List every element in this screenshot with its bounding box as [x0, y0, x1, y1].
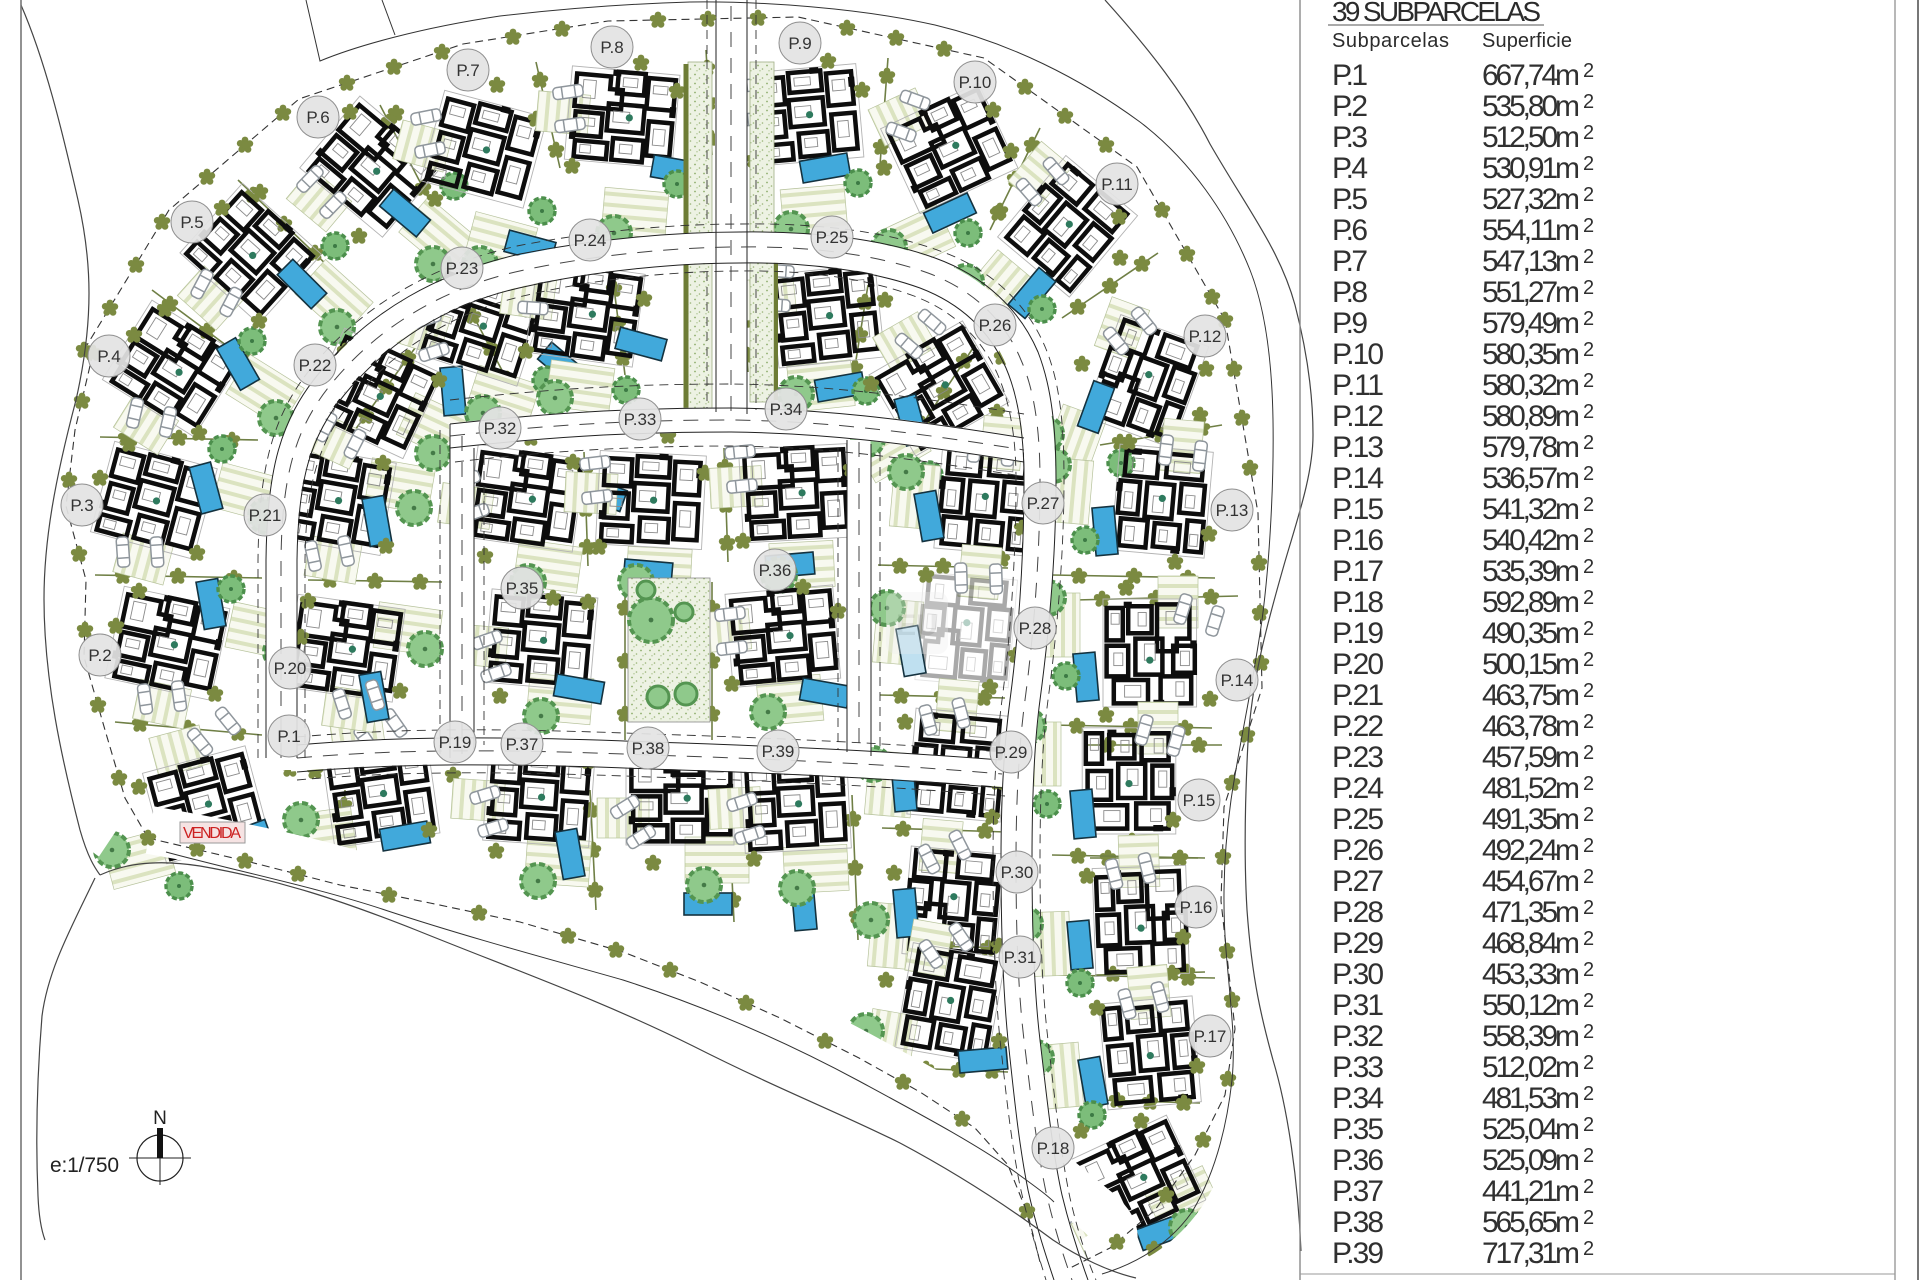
svg-text:2: 2	[1583, 494, 1594, 516]
svg-text:441,21m: 441,21m	[1482, 1175, 1580, 1208]
svg-text:2: 2	[1583, 91, 1594, 113]
svg-text:P.7: P.7	[456, 61, 479, 80]
svg-text:P.15: P.15	[1183, 791, 1216, 810]
svg-text:535,80m: 535,80m	[1482, 90, 1580, 123]
svg-text:P.27: P.27	[1332, 865, 1384, 898]
svg-text:2: 2	[1583, 649, 1594, 671]
svg-text:P.10: P.10	[1332, 338, 1384, 371]
svg-text:P.28: P.28	[1019, 619, 1052, 638]
svg-text:P.22: P.22	[1332, 710, 1384, 743]
svg-text:EU: EU	[896, 609, 938, 642]
svg-text:P.23: P.23	[1332, 741, 1384, 774]
svg-text:2: 2	[1583, 866, 1594, 888]
svg-text:2: 2	[1583, 184, 1594, 206]
svg-text:P.20: P.20	[274, 659, 307, 678]
svg-text:491,35m: 491,35m	[1482, 803, 1580, 836]
svg-text:P.17: P.17	[1194, 1027, 1227, 1046]
svg-text:P.23: P.23	[446, 259, 479, 278]
svg-text:541,32m: 541,32m	[1482, 493, 1580, 526]
svg-text:2: 2	[1583, 1052, 1594, 1074]
svg-text:2: 2	[1583, 990, 1594, 1012]
svg-text:P.24: P.24	[574, 231, 607, 250]
svg-text:453,33m: 453,33m	[1482, 958, 1580, 991]
svg-text:N: N	[153, 1108, 167, 1129]
svg-text:512,02m: 512,02m	[1482, 1051, 1580, 1084]
svg-text:P.29: P.29	[995, 743, 1028, 762]
svg-text:P.37: P.37	[1332, 1175, 1384, 1208]
svg-text:565,65m: 565,65m	[1482, 1206, 1580, 1239]
svg-text:481,53m: 481,53m	[1482, 1082, 1580, 1115]
svg-text:P.7: P.7	[1332, 245, 1368, 278]
svg-text:P.3: P.3	[1332, 121, 1368, 154]
svg-text:P.19: P.19	[439, 733, 472, 752]
svg-text:547,13m: 547,13m	[1482, 245, 1580, 278]
svg-text:P.12: P.12	[1189, 327, 1222, 346]
svg-text:P.9: P.9	[1332, 307, 1368, 340]
svg-text:P.32: P.32	[484, 419, 517, 438]
svg-text:P.31: P.31	[1332, 989, 1384, 1022]
svg-text:P.6: P.6	[1332, 214, 1368, 247]
svg-text:463,78m: 463,78m	[1482, 710, 1580, 743]
svg-text:P.25: P.25	[1332, 803, 1384, 836]
svg-text:P.25: P.25	[816, 228, 849, 247]
svg-text:2: 2	[1583, 804, 1594, 826]
svg-text:2: 2	[1583, 959, 1594, 981]
svg-text:2: 2	[1583, 525, 1594, 547]
svg-text:P.1: P.1	[1332, 59, 1368, 92]
svg-text:468,84m: 468,84m	[1482, 927, 1580, 960]
svg-text:512,50m: 512,50m	[1482, 121, 1580, 154]
svg-text:P.14: P.14	[1221, 671, 1254, 690]
svg-text:525,09m: 525,09m	[1482, 1144, 1580, 1177]
svg-text:P.33: P.33	[1332, 1051, 1384, 1084]
svg-text:2: 2	[1583, 277, 1594, 299]
svg-text:P.16: P.16	[1180, 898, 1213, 917]
svg-text:454,67m: 454,67m	[1482, 865, 1580, 898]
svg-text:P.36: P.36	[759, 561, 792, 580]
svg-text:P.35: P.35	[1332, 1113, 1384, 1146]
svg-text:2: 2	[1583, 1238, 1594, 1260]
svg-text:P.13: P.13	[1332, 431, 1384, 464]
svg-text:2: 2	[1583, 1021, 1594, 1043]
svg-text:P.21: P.21	[1332, 679, 1384, 712]
svg-text:2: 2	[1583, 1145, 1594, 1167]
svg-text:P.20: P.20	[1332, 648, 1384, 681]
svg-text:Subparcelas: Subparcelas	[1332, 30, 1449, 52]
svg-text:P.37: P.37	[506, 735, 539, 754]
svg-text:P.1: P.1	[277, 727, 300, 746]
svg-text:e:1/750: e:1/750	[50, 1154, 119, 1177]
svg-text:550,12m: 550,12m	[1482, 989, 1580, 1022]
svg-text:P.4: P.4	[1332, 152, 1368, 185]
svg-text:P.6: P.6	[306, 108, 329, 127]
svg-text:P.38: P.38	[1332, 1206, 1384, 1239]
svg-text:P.32: P.32	[1332, 1020, 1384, 1053]
svg-text:2: 2	[1583, 60, 1594, 82]
svg-text:667,74m: 667,74m	[1482, 59, 1580, 92]
svg-text:P.12: P.12	[1332, 400, 1384, 433]
svg-text:2: 2	[1583, 1083, 1594, 1105]
svg-text:2: 2	[1583, 215, 1594, 237]
svg-text:2: 2	[1583, 773, 1594, 795]
svg-text:P.11: P.11	[1101, 175, 1133, 194]
svg-text:592,89m: 592,89m	[1482, 586, 1580, 619]
svg-text:P.5: P.5	[180, 213, 203, 232]
svg-text:P.29: P.29	[1332, 927, 1384, 960]
svg-text:P.34: P.34	[770, 400, 803, 419]
svg-text:500,15m: 500,15m	[1482, 648, 1580, 681]
svg-text:VENDIDA: VENDIDA	[183, 825, 241, 842]
svg-text:P.39: P.39	[762, 742, 795, 761]
svg-text:Superficie: Superficie	[1482, 30, 1572, 52]
svg-text:P.28: P.28	[1332, 896, 1384, 929]
svg-text:530,91m: 530,91m	[1482, 152, 1580, 185]
svg-text:P.39: P.39	[1332, 1237, 1384, 1270]
svg-text:P.24: P.24	[1332, 772, 1384, 805]
svg-text:P.15: P.15	[1332, 493, 1384, 526]
svg-text:P.36: P.36	[1332, 1144, 1384, 1177]
svg-text:P.34: P.34	[1332, 1082, 1384, 1115]
svg-text:580,32m: 580,32m	[1482, 369, 1580, 402]
svg-text:P.26: P.26	[979, 316, 1012, 335]
svg-text:535,39m: 535,39m	[1482, 555, 1580, 588]
svg-text:P.17: P.17	[1332, 555, 1384, 588]
svg-text:540,42m: 540,42m	[1482, 524, 1580, 557]
svg-text:525,04m: 525,04m	[1482, 1113, 1580, 1146]
svg-text:558,39m: 558,39m	[1482, 1020, 1580, 1053]
svg-text:P.27: P.27	[1027, 494, 1060, 513]
svg-text:P.19: P.19	[1332, 617, 1384, 650]
svg-text:2: 2	[1583, 432, 1594, 454]
svg-text:P.11: P.11	[1332, 369, 1384, 402]
svg-text:2: 2	[1583, 1114, 1594, 1136]
svg-text:2: 2	[1583, 246, 1594, 268]
svg-text:P.13: P.13	[1216, 501, 1249, 520]
svg-text:P.30: P.30	[1332, 958, 1384, 991]
svg-text:2: 2	[1583, 122, 1594, 144]
svg-text:P.10: P.10	[959, 73, 992, 92]
svg-text:P.18: P.18	[1332, 586, 1384, 619]
svg-text:P.5: P.5	[1332, 183, 1368, 216]
svg-text:P.33: P.33	[624, 410, 657, 429]
svg-text:P.3: P.3	[70, 496, 93, 515]
svg-text:P.2: P.2	[88, 646, 111, 665]
svg-text:2: 2	[1583, 1176, 1594, 1198]
svg-text:P.8: P.8	[600, 38, 623, 57]
svg-text:P.31: P.31	[1004, 948, 1037, 967]
svg-text:P.26: P.26	[1332, 834, 1384, 867]
svg-text:2: 2	[1583, 742, 1594, 764]
svg-text:2: 2	[1583, 308, 1594, 330]
svg-text:536,57m: 536,57m	[1482, 462, 1580, 495]
svg-text:471,35m: 471,35m	[1482, 896, 1580, 929]
svg-text:717,31m: 717,31m	[1482, 1237, 1580, 1270]
svg-text:2: 2	[1583, 835, 1594, 857]
svg-text:579,78m: 579,78m	[1482, 431, 1580, 464]
svg-text:P.4: P.4	[97, 347, 120, 366]
svg-text:P.14: P.14	[1332, 462, 1384, 495]
svg-text:463,75m: 463,75m	[1482, 679, 1580, 712]
svg-text:2: 2	[1583, 711, 1594, 733]
svg-text:P.35: P.35	[506, 579, 539, 598]
svg-text:2: 2	[1583, 587, 1594, 609]
svg-text:P.21: P.21	[249, 506, 282, 525]
svg-text:527,32m: 527,32m	[1482, 183, 1580, 216]
svg-text:490,35m: 490,35m	[1482, 617, 1580, 650]
svg-text:579,49m: 579,49m	[1482, 307, 1580, 340]
svg-text:2: 2	[1583, 928, 1594, 950]
svg-text:2: 2	[1583, 618, 1594, 640]
svg-text:457,59m: 457,59m	[1482, 741, 1580, 774]
svg-text:492,24m: 492,24m	[1482, 834, 1580, 867]
svg-text:P.22: P.22	[299, 356, 332, 375]
svg-text:P.18: P.18	[1037, 1139, 1070, 1158]
svg-text:2: 2	[1583, 370, 1594, 392]
svg-text:P.9: P.9	[788, 34, 811, 53]
svg-text:2: 2	[1583, 556, 1594, 578]
svg-text:2: 2	[1583, 1207, 1594, 1229]
svg-text:580,35m: 580,35m	[1482, 338, 1580, 371]
svg-text:P.8: P.8	[1332, 276, 1368, 309]
svg-text:2: 2	[1583, 153, 1594, 175]
svg-text:P.16: P.16	[1332, 524, 1384, 557]
svg-text:2: 2	[1583, 339, 1594, 361]
svg-text:P.2: P.2	[1332, 90, 1368, 123]
svg-text:481,52m: 481,52m	[1482, 772, 1580, 805]
svg-text:P.38: P.38	[632, 739, 665, 758]
svg-text:2: 2	[1583, 463, 1594, 485]
svg-text:551,27m: 551,27m	[1482, 276, 1580, 309]
svg-text:2: 2	[1583, 897, 1594, 919]
svg-text:2: 2	[1583, 680, 1594, 702]
svg-text:P.30: P.30	[1001, 863, 1034, 882]
svg-text:39 SUBPARCELAS: 39 SUBPARCELAS	[1332, 0, 1541, 27]
svg-text:580,89m: 580,89m	[1482, 400, 1580, 433]
svg-text:2: 2	[1583, 401, 1594, 423]
svg-text:554,11m: 554,11m	[1482, 214, 1580, 247]
